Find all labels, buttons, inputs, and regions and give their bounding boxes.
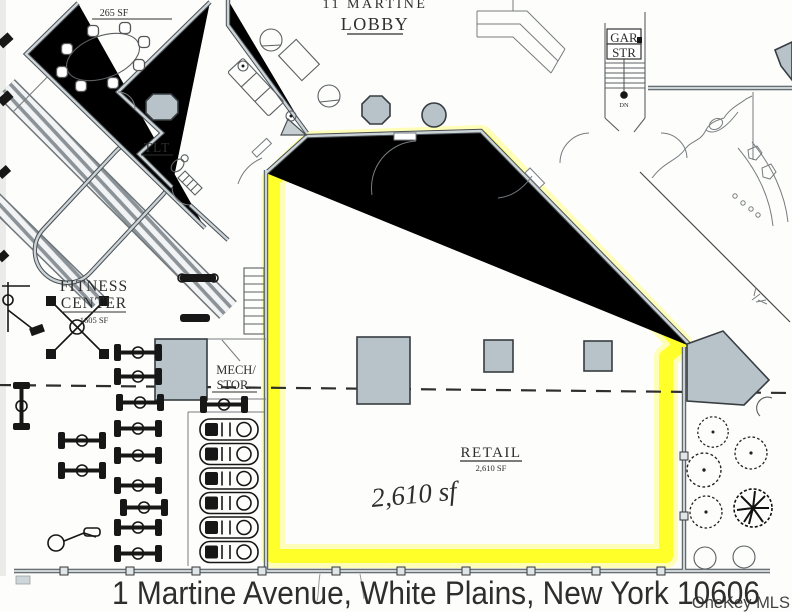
lobby-title: 11 MARTINE	[323, 0, 428, 12]
landscaping-trees	[687, 397, 772, 569]
fitness-label-2: CENTER	[61, 295, 127, 312]
sculpture-figure	[652, 96, 752, 178]
plan-labels: 11 MARTINE LOBBY 265 SF TLT FITNESS CENT…	[60, 0, 522, 513]
garage-stair-label-1: GAR	[610, 30, 638, 45]
retail-column-small-1	[484, 340, 513, 372]
retail-label: RETAIL	[460, 445, 521, 461]
stair-down-label: DN	[619, 102, 629, 109]
lobby-column-octagon	[362, 96, 390, 124]
fitness-sf-label: 1605 SF	[80, 315, 109, 325]
lobby-subtitle: LOBBY	[341, 14, 410, 34]
mech-label-1: MECH/	[216, 363, 256, 377]
garage-stair-label-2: STR	[612, 45, 636, 60]
scan-edge	[0, 0, 6, 576]
floor-plan-scan: GAR STR DN	[0, 0, 792, 612]
toilet-label: TLT	[144, 140, 171, 155]
mech-stor-room	[155, 339, 207, 400]
floor-plan: GAR STR DN	[0, 0, 792, 612]
mls-watermark: OneKey MLS	[692, 594, 790, 612]
plant-icon	[752, 287, 767, 304]
retail-sf-label: 2,610 SF	[476, 463, 507, 473]
garage-stair: GAR STR DN	[605, 12, 645, 132]
mech-label-2: STOR.	[217, 378, 252, 392]
corridor-column	[146, 94, 178, 120]
escalator-chevrons	[477, 0, 565, 73]
edge-diamond	[775, 42, 792, 80]
retail-column-small-2	[584, 341, 612, 371]
fitness-label-1: FITNESS	[60, 278, 128, 295]
handwritten-note: 2,610 sf	[370, 475, 461, 513]
entry-arrow-icon	[687, 331, 769, 405]
address-caption: 1 Martine Avenue, White Plains, New York…	[112, 575, 760, 611]
walkway-and-rocks	[640, 142, 790, 322]
retail-column-large	[357, 337, 410, 404]
dense-tree-icon	[734, 489, 772, 527]
conference-sf-label: 265 SF	[100, 8, 129, 19]
lobby-column-round	[422, 103, 446, 127]
